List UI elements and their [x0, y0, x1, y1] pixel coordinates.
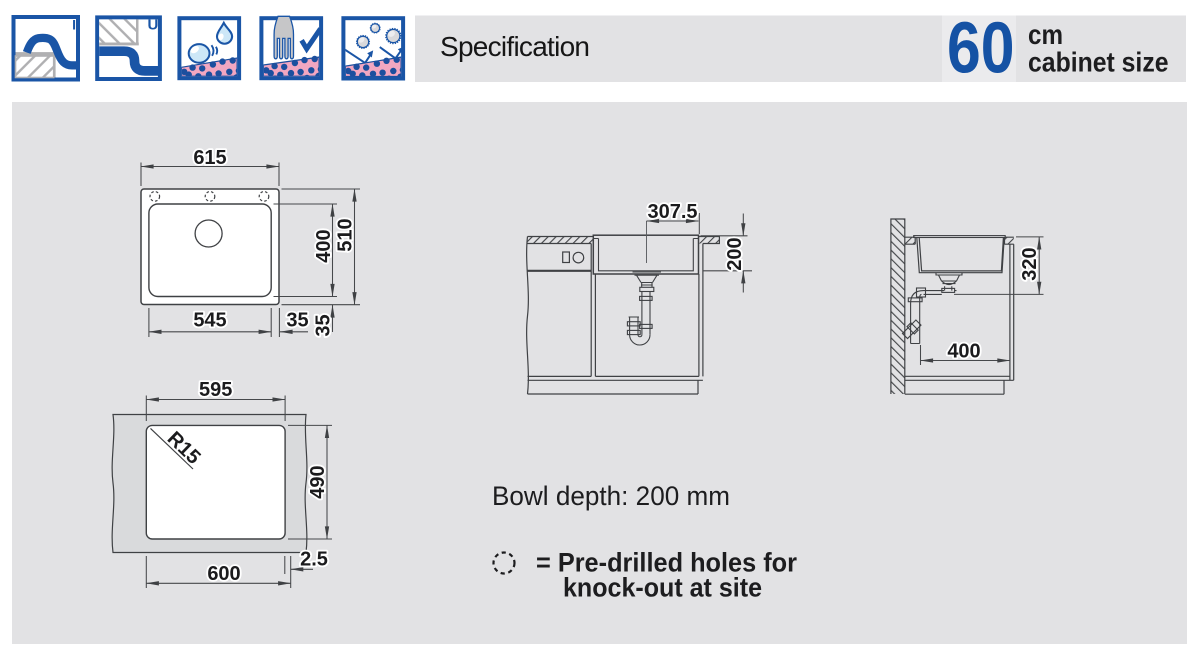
- svg-text:600: 600: [207, 563, 240, 585]
- svg-text:I: I: [72, 17, 76, 33]
- svg-text:490: 490: [307, 465, 329, 498]
- svg-text:545: 545: [193, 310, 226, 332]
- svg-text:200: 200: [724, 237, 746, 270]
- svg-text:595: 595: [199, 379, 232, 401]
- svg-text:cm: cm: [1028, 19, 1063, 50]
- svg-text:U: U: [147, 17, 158, 34]
- svg-text:510: 510: [335, 218, 357, 251]
- svg-text:Specification: Specification: [440, 31, 590, 62]
- svg-text:35: 35: [286, 310, 308, 332]
- svg-text:cabinet size: cabinet size: [1028, 47, 1169, 78]
- svg-text:400: 400: [947, 341, 980, 363]
- svg-text:307.5: 307.5: [647, 201, 697, 223]
- svg-text:320: 320: [1019, 247, 1041, 280]
- svg-text:400: 400: [313, 229, 335, 262]
- svg-text:Bowl depth: 200 mm: Bowl depth: 200 mm: [492, 481, 730, 511]
- svg-text:2.5: 2.5: [300, 549, 328, 571]
- svg-text:knock-out at site: knock-out at site: [563, 573, 762, 603]
- svg-text:35: 35: [313, 314, 335, 336]
- svg-text:615: 615: [193, 147, 226, 169]
- svg-text:60: 60: [947, 9, 1015, 89]
